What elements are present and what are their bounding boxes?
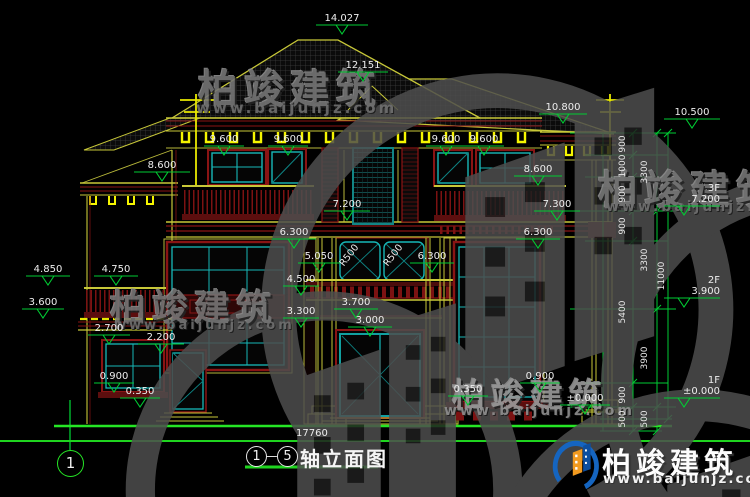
elevation-marker: 9.600: [464, 134, 504, 156]
dimension-label: 900: [618, 204, 630, 248]
elevation-marker: 14.027: [316, 13, 368, 35]
watermark-url: www.baijunjz.com: [196, 99, 397, 117]
elevation-marker: 6.300: [410, 251, 454, 273]
watermark-url: www.baijunjz.com: [114, 318, 295, 333]
elevation-marker: 2.200: [138, 332, 184, 354]
elevation-marker: 2.700: [88, 323, 130, 345]
elevation-marker: 10.500: [664, 107, 720, 129]
drawing-title: 轴立面图: [300, 443, 388, 472]
elevation-marker: 0.350: [120, 386, 160, 408]
elevation-marker: 5.050: [298, 251, 340, 273]
elevation-marker: 8.600: [514, 164, 562, 186]
dimension-label: 5400: [618, 290, 630, 334]
dimension-label: 3300: [640, 238, 652, 282]
brand-url: www.baijunjz.com: [603, 471, 750, 487]
floor-name: 3F: [708, 183, 720, 194]
overall-width-dimension: 17760: [296, 428, 328, 439]
cad-screenshot: 14.027 12.151 10.800 10.500 9.600 9.600 …: [0, 0, 750, 497]
elevation-marker: 3.000: [348, 315, 392, 337]
dimension-label: 500: [640, 397, 652, 441]
elevation-marker: 6.300: [516, 227, 560, 249]
elevation-marker: 9.600: [426, 134, 466, 156]
dimension-label: 3900: [640, 336, 652, 380]
elevation-marker: 7.300: [534, 199, 580, 221]
elevation-marker: 4.750: [94, 264, 138, 286]
title-axis-end-bubble: 5: [277, 446, 298, 467]
floor-marker: 3F 7.200: [664, 183, 720, 216]
elevation-marker: 9.600: [204, 134, 244, 156]
title-axis-start-bubble: 1: [246, 446, 267, 467]
dimension-label: 3300: [640, 150, 652, 194]
elevation-marker: 3.600: [22, 297, 64, 319]
elevation-marker: 9.600: [268, 134, 308, 156]
dimension-label-overall: 11000: [657, 254, 669, 298]
elevation-marker: 3.300: [283, 306, 319, 328]
floor-marker: 1F ±0.000: [664, 375, 720, 408]
elevation-marker: 10.800: [539, 102, 587, 124]
elevation-marker: 0.900: [520, 371, 560, 393]
elevation-marker: 12.151: [338, 60, 388, 82]
elevation-marker: 6.300: [272, 227, 316, 249]
elevation-marker: 8.600: [134, 160, 190, 182]
elevation-marker: 0.350: [448, 384, 488, 406]
elevation-marker: 7.200: [324, 199, 370, 221]
elevation-value: 14.027: [325, 13, 360, 24]
floor-level: 7.200: [691, 194, 720, 205]
dimension-label: 500: [618, 397, 630, 441]
elevation-marker: 4.850: [26, 264, 70, 286]
floor-marker: 2F 3.900: [664, 275, 720, 308]
elevation-marker: 4.500: [283, 274, 319, 296]
axis-grid-bubble: 1: [57, 450, 84, 477]
elevation-marker: ±0.000: [560, 393, 610, 415]
